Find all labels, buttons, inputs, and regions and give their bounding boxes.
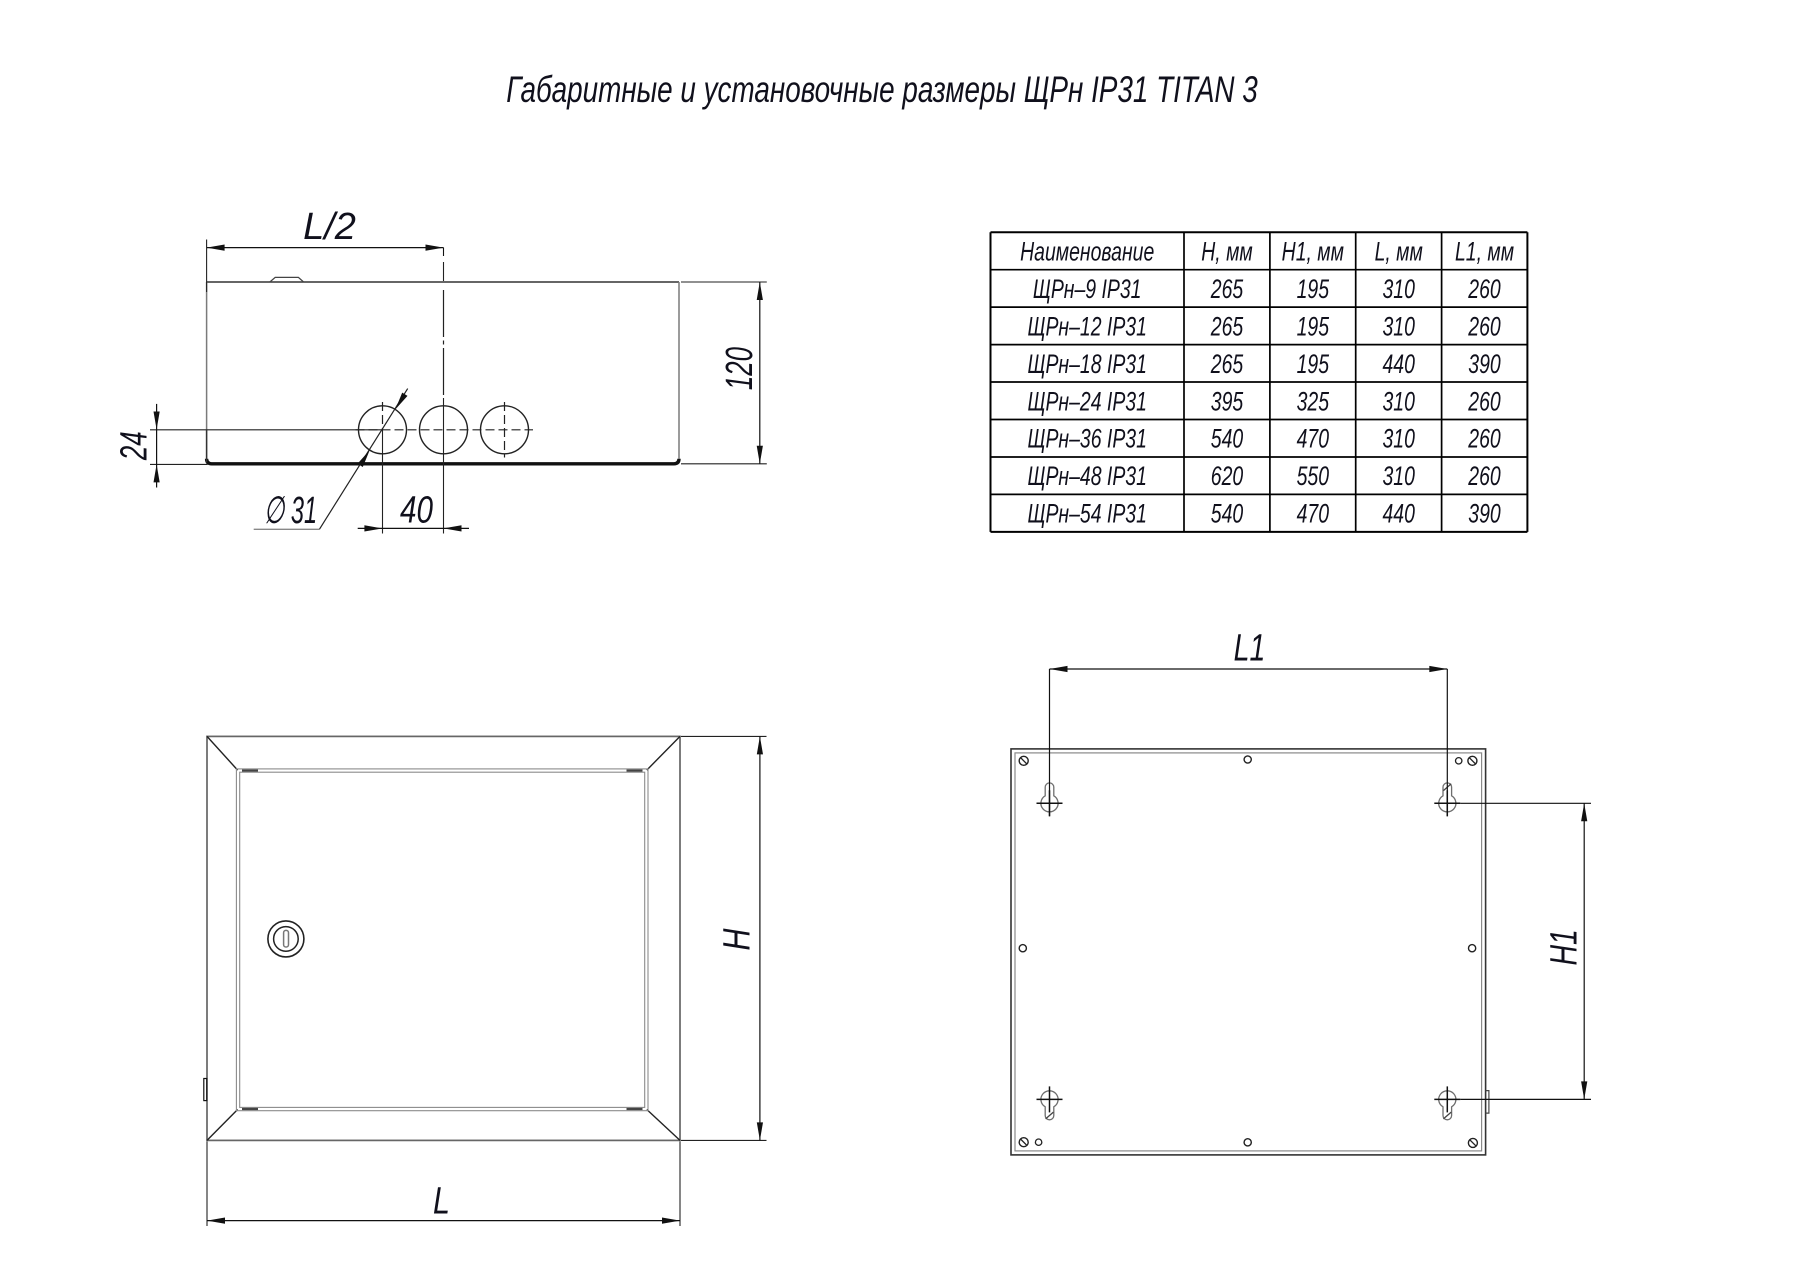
svg-text:H1: H1 — [1544, 929, 1586, 965]
svg-text:395: 395 — [1211, 386, 1244, 416]
svg-text:ЩРн–9 IP31: ЩРн–9 IP31 — [1033, 274, 1142, 304]
svg-text:260: 260 — [1467, 386, 1500, 416]
svg-text:Наименование: Наименование — [1020, 236, 1154, 266]
svg-text:550: 550 — [1297, 461, 1329, 491]
svg-text:265: 265 — [1210, 274, 1244, 304]
svg-text:265: 265 — [1210, 349, 1244, 379]
svg-text:540: 540 — [1211, 424, 1243, 454]
svg-text:ЩРн–18 IP31: ЩРн–18 IP31 — [1028, 349, 1147, 379]
svg-text:540: 540 — [1211, 499, 1243, 529]
svg-text:390: 390 — [1468, 499, 1500, 529]
svg-text:470: 470 — [1297, 424, 1329, 454]
svg-text:ЩРн–48 IP31: ЩРн–48 IP31 — [1028, 461, 1147, 491]
svg-text:L, мм: L, мм — [1375, 236, 1423, 266]
svg-text:H: H — [716, 928, 758, 950]
svg-text:L: L — [433, 1180, 450, 1222]
svg-text:260: 260 — [1467, 461, 1500, 491]
svg-text:195: 195 — [1297, 311, 1330, 341]
svg-text:265: 265 — [1210, 311, 1244, 341]
svg-text:ЩРн–24 IP31: ЩРн–24 IP31 — [1028, 386, 1147, 416]
svg-text:390: 390 — [1468, 349, 1500, 379]
svg-text:310: 310 — [1382, 461, 1414, 491]
svg-text:120: 120 — [718, 347, 760, 390]
svg-text:470: 470 — [1297, 499, 1329, 529]
svg-text:260: 260 — [1467, 311, 1500, 341]
svg-text:260: 260 — [1467, 424, 1500, 454]
svg-text:40: 40 — [400, 489, 433, 531]
svg-text:ЩРн–36 IP31: ЩРн–36 IP31 — [1028, 424, 1147, 454]
svg-text:440: 440 — [1382, 499, 1414, 529]
svg-text:ЩРн–54 IP31: ЩРн–54 IP31 — [1028, 499, 1147, 529]
svg-text:L1, мм: L1, мм — [1455, 236, 1514, 266]
svg-text:310: 310 — [1382, 424, 1414, 454]
svg-text:ЩРн–12 IP31: ЩРн–12 IP31 — [1028, 311, 1147, 341]
svg-text:310: 310 — [1382, 274, 1414, 304]
svg-text:325: 325 — [1297, 386, 1330, 416]
svg-text:∅ 31: ∅ 31 — [264, 488, 317, 531]
svg-text:440: 440 — [1382, 349, 1414, 379]
svg-text:L1: L1 — [1234, 628, 1266, 670]
svg-text:24: 24 — [113, 431, 155, 461]
svg-text:Габаритные и установочные разм: Габаритные и установочные размеры ЩРн IP… — [506, 68, 1258, 110]
svg-text:H1, мм: H1, мм — [1282, 236, 1344, 266]
svg-text:L/2: L/2 — [303, 206, 356, 248]
svg-text:310: 310 — [1382, 311, 1414, 341]
svg-text:195: 195 — [1297, 274, 1330, 304]
svg-text:195: 195 — [1297, 349, 1330, 379]
svg-text:260: 260 — [1467, 274, 1500, 304]
svg-text:H, мм: H, мм — [1201, 236, 1252, 266]
svg-text:310: 310 — [1382, 386, 1414, 416]
svg-text:620: 620 — [1211, 461, 1243, 491]
